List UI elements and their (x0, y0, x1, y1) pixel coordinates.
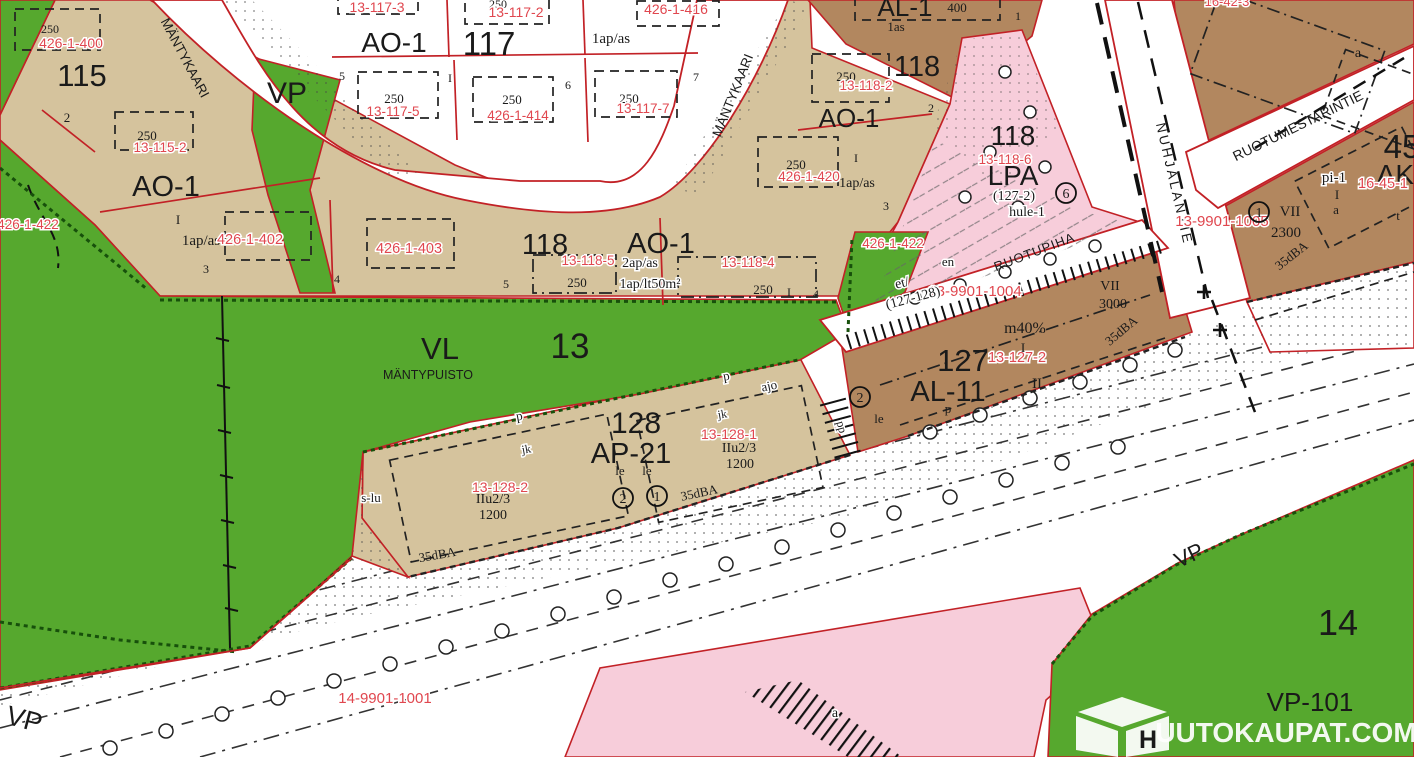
note-le: le (615, 463, 625, 478)
plot-no: 6 (565, 78, 571, 92)
note-127-2: (127-2) (993, 189, 1035, 204)
storeys: I (854, 151, 858, 165)
build-right-400: 400 (947, 0, 967, 15)
registry-13-117-7: 13-117-7 (616, 101, 669, 116)
registry-13-127-2: 13-127-2 (988, 350, 1046, 366)
zone-ao1-ne: AO-1 (819, 103, 880, 133)
plot-size: 250 (753, 282, 773, 297)
zone-ao1-sw: AO-1 (132, 171, 200, 203)
zone-vp-101-label: VP-101 (1267, 687, 1354, 717)
zone-vl-label: VL (421, 331, 459, 366)
build-right-2300: 2300 (1271, 225, 1301, 241)
build-right-1200: 1200 (479, 508, 507, 523)
build-right-1200: 1200 (726, 457, 754, 472)
note-s-lu: s-lu (361, 490, 381, 505)
zone-lpa-label: LPA (988, 160, 1039, 191)
exit-no-6: 6 (1063, 187, 1070, 202)
note-le: le (874, 411, 884, 426)
exit-no-1b: 1 (654, 490, 661, 505)
registry-13-115-2: 13-115-2 (133, 140, 186, 155)
plot-no: 4 (334, 272, 340, 286)
registry-426-1-420: 426-1-420 (778, 169, 840, 184)
note-1ap-as: 1ap/as (182, 233, 220, 249)
registry-426-1-403: 426-1-403 (376, 241, 442, 257)
note-p: p (945, 401, 952, 416)
note-1ap-as: 1ap/as (592, 31, 630, 47)
registry-14-9901-1001: 14-9901-1001 (338, 690, 431, 707)
note-en: en (942, 254, 955, 269)
note-le: le (642, 463, 652, 478)
note-pi-1: pi-1 (1322, 170, 1346, 186)
plot-size: 250 (502, 92, 522, 107)
registry-13-117-2: 13-117-2 (488, 4, 543, 20)
note-t: t (1396, 208, 1400, 223)
plot-size: 250 (41, 22, 59, 36)
registry-426-1-422: 426-1-422 (862, 236, 924, 251)
watermark-brand-initial: H (1139, 726, 1157, 754)
block-118-lpa: 118 (991, 120, 1036, 151)
note-2ap-as: 2ap/as (622, 256, 658, 271)
note-a: a (1355, 46, 1362, 61)
plot-no: 4 (813, 287, 819, 301)
zoning-map-screenshot: 250 426-1-400 115 MÄNTYKAARI VP 2 250 13… (0, 0, 1414, 757)
block-118-ne: 118 (894, 51, 940, 83)
registry-16-42-3: 16-42-3 (1205, 0, 1250, 9)
note-1as: 1as (887, 19, 904, 34)
watermark-brand-text: UUTOKAUPAT.COM (1155, 717, 1414, 748)
registry-13-9901-1004: 13-9901-1004 (928, 283, 1021, 300)
plot-no: 2 (928, 101, 934, 115)
plot-no: 7 (693, 70, 699, 84)
registry-13-118-5: 13-118-5 (561, 253, 614, 268)
registry-426-1-402: 426-1-402 (217, 232, 283, 248)
zone-al1-label: AL-1 (878, 0, 933, 22)
plot-size: 250 (567, 275, 587, 290)
district-14: 14 (1318, 602, 1358, 643)
storeys-iiu: IIu2/3 (476, 492, 510, 507)
storeys: I (176, 212, 180, 227)
note-hule-1: hule-1 (1009, 205, 1045, 220)
storeys-iiu: IIu2/3 (722, 441, 756, 456)
block-127: 127 (937, 343, 989, 378)
exit-no-2: 2 (857, 391, 864, 406)
storeys-ii: II (1032, 376, 1042, 392)
block-117: 117 (463, 25, 516, 62)
note-a: a (832, 706, 839, 721)
build-right-3000: 3000 (1099, 297, 1127, 312)
storeys-vii: VII (1100, 279, 1120, 294)
block-115: 115 (57, 58, 106, 93)
registry-426-1-400: 426-1-400 (39, 35, 103, 51)
registry-13-128-1: 13-128-1 (701, 426, 757, 442)
zoning-map: 250 426-1-400 115 MÄNTYKAARI VP 2 250 13… (0, 0, 1414, 757)
storeys: I (787, 285, 791, 299)
note-1ap-lt50: 1ap/lt50m² (620, 277, 681, 292)
plot-no: 3 (883, 199, 889, 213)
plot-no: 5 (503, 277, 509, 291)
exit-no-2b: 2 (620, 492, 627, 507)
zone-ao1-117: AO-1 (361, 27, 426, 58)
registry-426-1-414: 426-1-414 (487, 108, 549, 123)
storeys: I (1021, 340, 1025, 355)
registry-16-45-1: 16-45-1 (1358, 176, 1408, 192)
storeys: I (448, 71, 452, 85)
registry-426-1-416: 426-1-416 (644, 1, 708, 17)
zone-vp-label-north: VP (267, 77, 307, 110)
block-128: 128 (611, 407, 661, 440)
note-1ap-as: 1ap/as (839, 176, 875, 191)
registry-13-117-3: 13-117-3 (349, 0, 404, 15)
storeys-vii: VII (1280, 204, 1301, 220)
exit-no-1: 1 (1256, 206, 1263, 221)
registry-426-1-422-edge: 426-1-422 (0, 217, 59, 232)
registry-13-118-4: 13-118-4 (721, 255, 775, 270)
plot-no: 5 (339, 69, 345, 83)
note-a: a (1333, 202, 1339, 217)
park-name-mantypuisto: MÄNTYPUISTO (383, 368, 473, 382)
zone-ap21-label: AP-21 (591, 438, 672, 470)
note-m40: m40% (1004, 320, 1046, 337)
district-13: 13 (551, 327, 590, 366)
plot-no: 1 (1015, 9, 1021, 23)
registry-13-117-5: 13-117-5 (366, 104, 419, 119)
storeys: I (1335, 187, 1339, 202)
plot-no: 3 (203, 262, 209, 276)
plot-no: 2 (64, 110, 71, 125)
registry-13-118-2: 13-118-2 (839, 78, 892, 93)
